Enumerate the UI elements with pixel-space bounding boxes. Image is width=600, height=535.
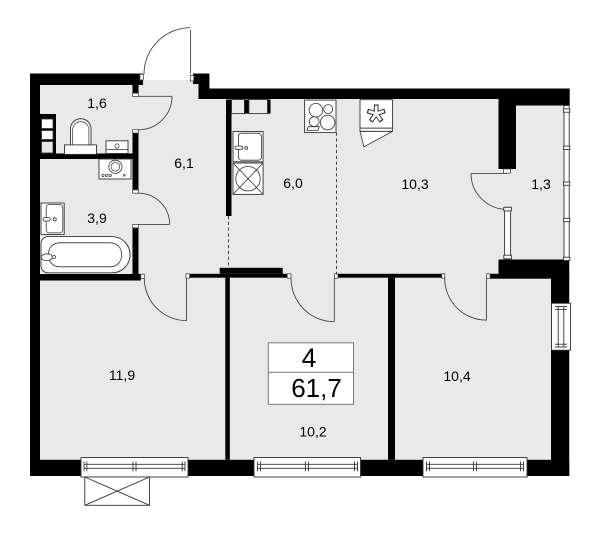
svg-text:10,4: 10,4 [443,368,470,384]
svg-text:4: 4 [302,343,317,373]
svg-text:6,0: 6,0 [283,175,303,191]
svg-text:1,3: 1,3 [531,176,551,192]
svg-text:3,9: 3,9 [87,210,107,226]
svg-text:10,2: 10,2 [299,424,326,440]
svg-text:11,9: 11,9 [109,367,135,383]
svg-text:6,1: 6,1 [174,155,194,171]
svg-text:10,3: 10,3 [401,176,428,192]
svg-text:61,7: 61,7 [291,373,342,403]
svg-text:1,6: 1,6 [87,95,107,111]
